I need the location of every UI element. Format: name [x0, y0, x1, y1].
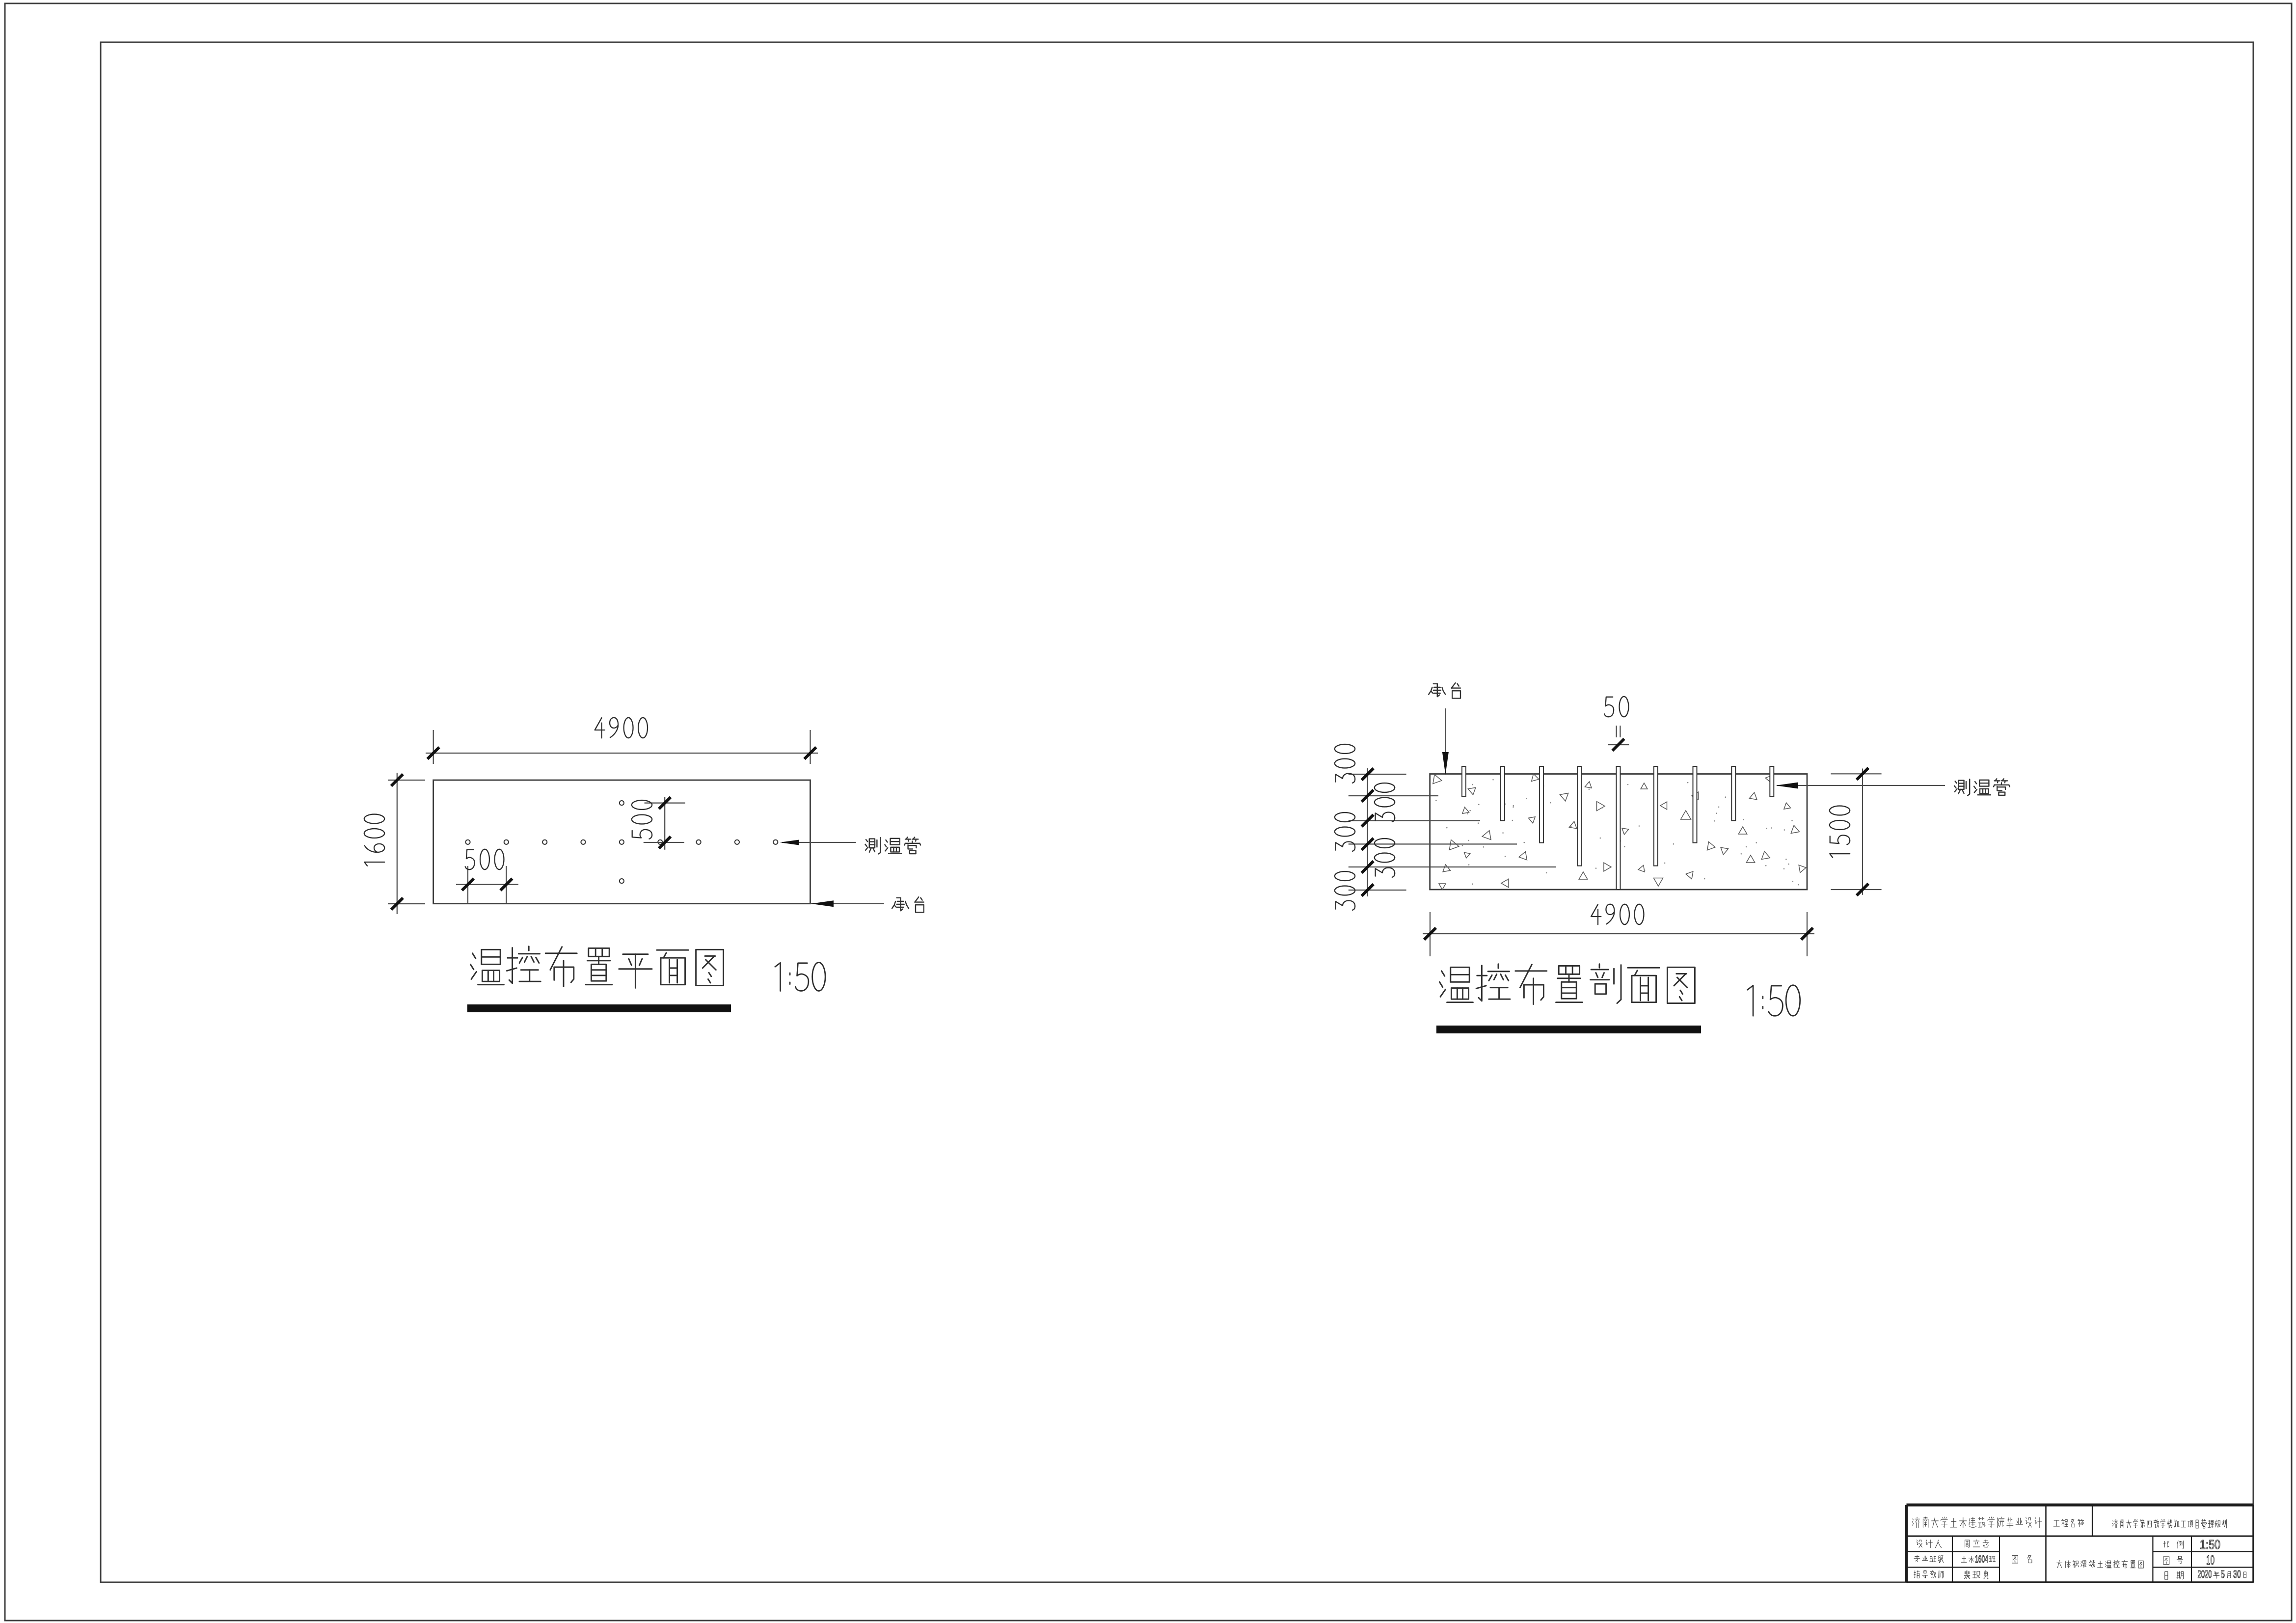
svg-text:30: 30	[2233, 1568, 2241, 1580]
svg-text:2020: 2020	[2198, 1568, 2212, 1580]
svg-text:10: 10	[2206, 1553, 2215, 1568]
svg-text:1:50: 1:50	[2200, 1537, 2220, 1552]
svg-text:1604: 1604	[1975, 1554, 1988, 1565]
svg-text:5: 5	[2221, 1568, 2225, 1580]
